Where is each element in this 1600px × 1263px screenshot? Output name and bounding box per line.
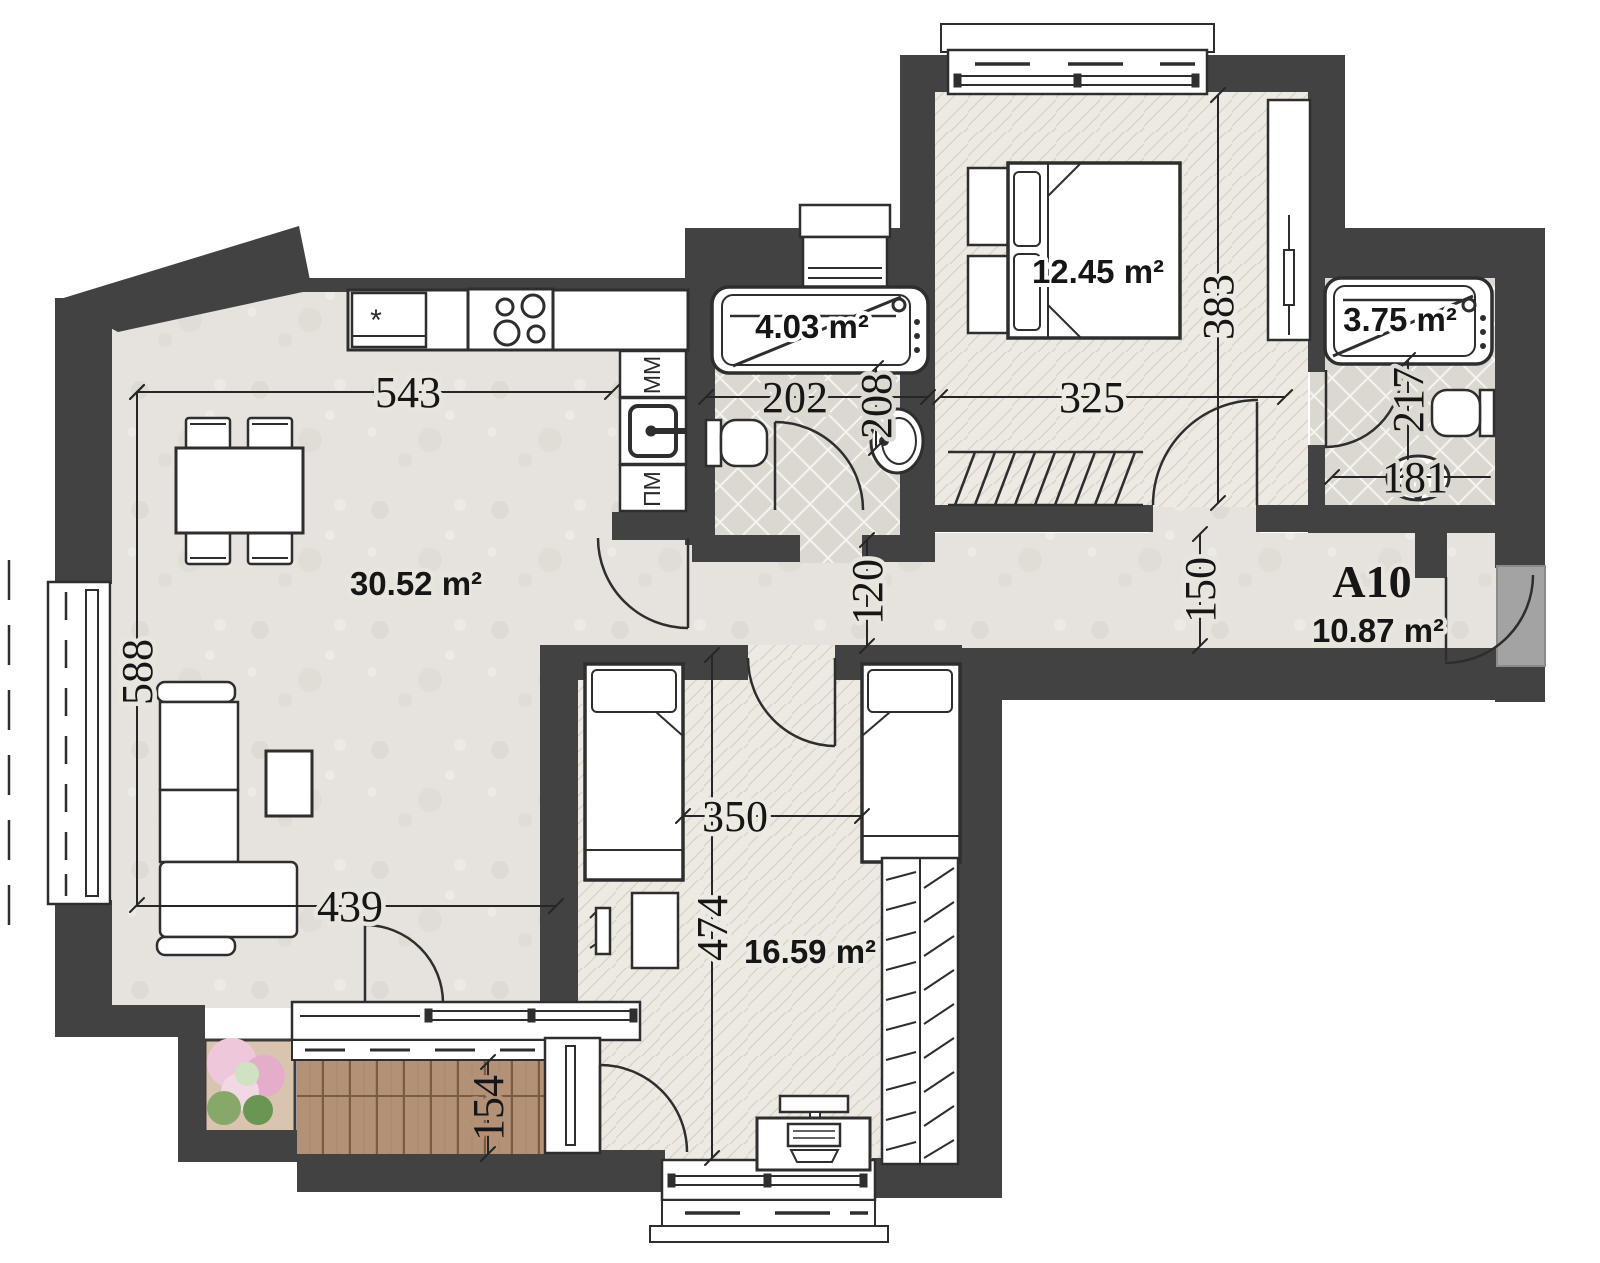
wall-segment	[1495, 278, 1545, 568]
wall-segment	[178, 1130, 297, 1162]
wall-segment	[715, 228, 803, 292]
wall-segment	[1308, 445, 1325, 505]
wall-segment	[692, 535, 800, 562]
washing-machine-label: ММ	[639, 356, 665, 394]
wall-segment	[55, 900, 112, 1010]
wardrobe-hatch	[882, 858, 958, 1164]
fridge-star-label: *	[370, 304, 382, 337]
wall-segment	[960, 648, 1545, 700]
wall-segment	[1308, 505, 1497, 533]
floor-plan-page: 543 588 439 154 202 208 120 350 474 325 …	[0, 0, 1600, 1263]
wall-segment	[55, 1005, 205, 1037]
kids-doorway	[748, 645, 835, 683]
single-bed	[585, 664, 683, 880]
entrance-threshold	[1497, 566, 1545, 666]
wall-segment	[1203, 55, 1310, 92]
window	[48, 582, 110, 904]
wall-segment	[1415, 533, 1447, 578]
dim-154: 154	[464, 1075, 513, 1141]
hall-floor	[1150, 505, 1260, 545]
dim-150: 150	[1176, 557, 1225, 623]
wall-segment	[55, 298, 112, 584]
kitchen-sink	[620, 398, 686, 464]
dim-383: 383	[1194, 274, 1243, 340]
dim-439: 439	[317, 882, 383, 931]
window	[941, 24, 1214, 94]
nightstand	[632, 893, 678, 968]
nightstand	[968, 256, 1012, 333]
single-bed	[862, 664, 960, 862]
unit-code-label: A10	[1332, 556, 1411, 607]
kids-area-label: 16.59 m²	[744, 933, 876, 970]
wall-segment	[958, 648, 1002, 1198]
dim-588: 588	[113, 639, 162, 705]
dim-208: 208	[852, 373, 901, 439]
wall-segment	[900, 55, 952, 92]
wall-segment	[297, 1154, 550, 1192]
wall-segment	[612, 512, 688, 540]
bath-top-doorway	[800, 533, 862, 563]
window	[800, 205, 890, 292]
stove	[468, 289, 553, 350]
wall-segment	[1308, 55, 1345, 278]
bath-right-area-label: 3.75 m²	[1343, 301, 1457, 338]
wall-segment	[1256, 505, 1310, 532]
plant-leaf	[243, 1095, 273, 1125]
living-area-label: 30.52 m²	[350, 565, 482, 602]
dim-202: 202	[762, 373, 828, 422]
window	[545, 1038, 600, 1153]
toilet	[706, 420, 767, 466]
dim-474: 474	[688, 895, 737, 961]
wardrobe	[1268, 100, 1310, 340]
dim-350: 350	[702, 792, 768, 841]
bedroom-area-label: 12.45 m²	[1032, 253, 1164, 290]
nightstand	[968, 168, 1012, 245]
planter	[205, 1038, 295, 1133]
fridge	[352, 293, 426, 347]
dishwasher-label: ПМ	[639, 471, 665, 507]
wall-segment	[935, 505, 1153, 532]
plant-leaf	[235, 1062, 259, 1086]
coffee-table	[266, 751, 312, 816]
dim-325: 325	[1059, 373, 1125, 422]
dim-120: 120	[843, 559, 892, 625]
floor-plan: 543 588 439 154 202 208 120 350 474 325 …	[0, 0, 1600, 1263]
toilet	[1432, 390, 1494, 436]
plant-leaf	[207, 1091, 241, 1125]
wall-segment	[540, 645, 578, 1012]
hall-area-label: 10.87 m²	[1312, 612, 1444, 649]
wall-segment	[545, 1150, 665, 1192]
dim-543: 543	[375, 368, 441, 417]
wall-segment	[1345, 228, 1545, 278]
dim-181: 181	[1382, 453, 1448, 502]
double-bed	[1008, 163, 1180, 338]
window	[650, 1160, 888, 1242]
bath-top-area-label: 4.03 m²	[755, 308, 869, 345]
dim-217: 217	[1384, 367, 1433, 433]
wall-segment	[685, 228, 715, 545]
wall-segment	[1495, 664, 1545, 702]
